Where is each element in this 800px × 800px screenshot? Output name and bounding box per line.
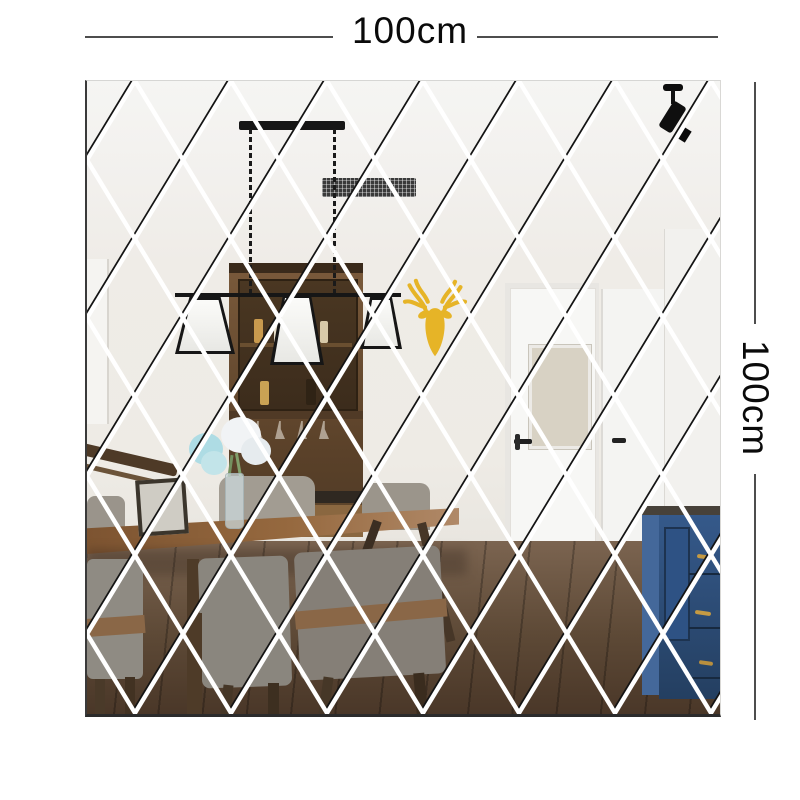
- diamond-lattice: [87, 81, 720, 714]
- room-scene: [87, 81, 720, 714]
- top-dimension-label: 100cm: [345, 10, 475, 52]
- right-dimension-line-top: [754, 82, 756, 324]
- right-dimension-line-bottom: [754, 474, 756, 720]
- top-dimension-line-left: [85, 36, 333, 38]
- mirror-wall-sticker: [85, 80, 721, 717]
- top-dimension-line-right: [477, 36, 718, 38]
- right-dimension-label: 100cm: [734, 333, 776, 463]
- product-photo: 100cm 100cm: [0, 0, 800, 800]
